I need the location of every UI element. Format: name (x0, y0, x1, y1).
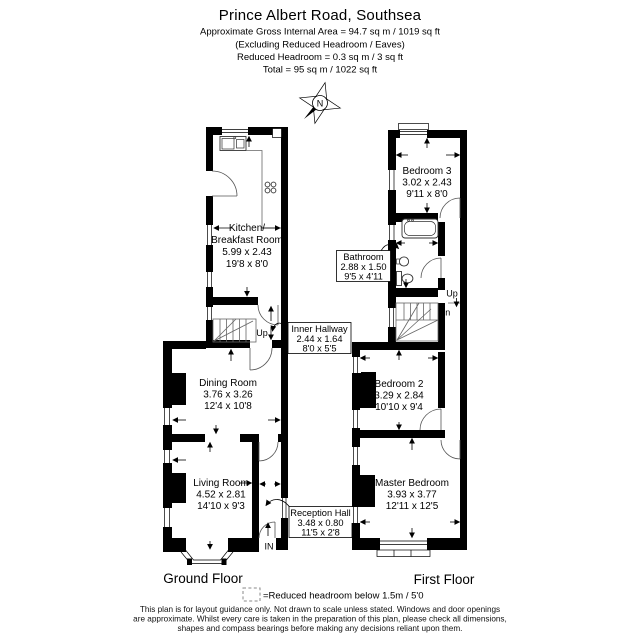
floorplan-canvas: Prince Albert Road, Southsea Approximate… (0, 0, 640, 640)
compass-north-label: N (317, 98, 324, 108)
kitchen-name-2: Breakfast Room (211, 235, 283, 246)
master-bedroom-label: Master Bedroom 3.93 x 3.77 12'11 x 12'5 (375, 478, 449, 512)
bathroom-metric: 2.88 x 1.50 (340, 262, 386, 272)
bedroom2-label: Bedroom 2 3.29 x 2.84 10'10 x 9'4 (374, 379, 424, 413)
stairs-treads (214, 319, 253, 342)
dining-imperial: 12'4 x 10'8 (204, 401, 252, 412)
compass-icon: N (295, 78, 346, 129)
bedroom2-imperial: 10'10 x 9'4 (375, 402, 423, 413)
master-imperial: 12'11 x 12'5 (386, 501, 439, 512)
bathroom-imperial: 9'5 x 4'11 (344, 272, 383, 282)
bathroom-name: Bathroom (343, 252, 384, 262)
page-title: Prince Albert Road, Southsea (219, 7, 422, 24)
reduced-headroom-swatch (243, 588, 260, 601)
inner-hallway-imperial: 8'0 x 5'5 (302, 344, 336, 354)
living-name: Living Room (193, 478, 249, 489)
kitchen-label: Kitchen/ Breakfast Room 5.99 x 2.43 19'8… (211, 223, 283, 270)
master-window-sill (377, 550, 430, 557)
ground-stairs-up-label: Up (256, 328, 268, 338)
legend: =Reduced headroom below 1.5m / 5'0 (243, 588, 424, 602)
reception-hall-metric: 3.48 x 0.80 (297, 518, 343, 528)
first-floor-stairs-icon (396, 303, 460, 341)
kitchen-flue-box (273, 129, 282, 138)
bay-mullion (222, 559, 227, 566)
first-floor-plan: Bedroom 3 3.02 x 2.43 9'11 x 8'0 Bedroom… (337, 124, 475, 588)
master-name: Master Bedroom (375, 478, 449, 489)
stairs-treads (396, 303, 438, 340)
inner-hallway-name: Inner Hallway (291, 324, 348, 334)
disclaimer-line-3: shapes and compass bearings before makin… (178, 624, 463, 633)
reception-hall-callout: Reception Hall 3.48 x 0.80 11'5 x 2'8 (266, 500, 352, 538)
disclaimer-line-2: are approximate. Whilst every care is ta… (133, 615, 507, 624)
reception-hall-imperial: 11'5 x 2'8 (301, 528, 340, 538)
dining-name: Dining Room (199, 378, 257, 389)
kitchen-name-1: Kitchen/ (229, 223, 265, 234)
bedroom3-name: Bedroom 3 (403, 166, 452, 177)
gross-area-line: Approximate Gross Internal Area = 94.7 s… (200, 27, 440, 38)
basin-icon (397, 257, 409, 266)
disclaimer-line-1: This plan is for layout guidance only. N… (140, 605, 500, 614)
bedroom3-window-sill (399, 124, 429, 130)
first-stairs-down-label: Dn (439, 308, 451, 318)
bedroom3-metric: 3.02 x 2.43 (402, 178, 452, 189)
ground-floor-plan: Kitchen/ Breakfast Room 5.99 x 2.43 19'8… (162, 126, 352, 586)
dining-metric: 3.76 x 3.26 (203, 390, 253, 401)
excluding-line: (Excluding Reduced Headroom / Eaves) (235, 40, 405, 51)
total-area-line: Total = 95 sq m / 1022 sq ft (263, 65, 378, 76)
toilet-icon (397, 272, 413, 286)
first-floor-title: First Floor (414, 572, 475, 587)
kitchen-metric: 5.99 x 2.43 (222, 247, 272, 258)
master-metric: 3.93 x 3.77 (387, 490, 437, 501)
bay-window (181, 550, 233, 565)
header: Prince Albert Road, Southsea Approximate… (200, 7, 440, 76)
sill-outline (377, 550, 430, 557)
hob-icon (265, 182, 276, 193)
disclaimer: This plan is for layout guidance only. N… (133, 605, 507, 633)
bathtub-icon (402, 219, 438, 238)
dining-room-label: Dining Room 3.76 x 3.26 12'4 x 10'8 (199, 378, 257, 412)
kitchen-imperial: 19'8 x 8'0 (226, 259, 269, 270)
ground-floor-stairs-icon (213, 319, 256, 342)
living-room-label: Living Room 4.52 x 2.81 14'10 x 9'3 (193, 478, 249, 512)
bedroom2-metric: 3.29 x 2.84 (374, 391, 424, 402)
entrance-in-label: IN (265, 542, 274, 552)
bedroom3-label: Bedroom 3 3.02 x 2.43 9'11 x 8'0 (402, 166, 452, 200)
bedroom2-name: Bedroom 2 (375, 379, 424, 390)
reduced-headroom-legend: =Reduced headroom below 1.5m / 5'0 (263, 591, 424, 602)
reception-hall-name: Reception Hall (290, 508, 350, 518)
ground-floor-window-gaps (162, 126, 289, 527)
bedroom3-imperial: 9'11 x 8'0 (406, 189, 448, 200)
bay-mullion (187, 559, 192, 566)
first-stairs-up-label: Up (446, 289, 458, 299)
living-metric: 4.52 x 2.81 (196, 490, 246, 501)
inner-hallway-metric: 2.44 x 1.64 (296, 334, 342, 344)
ground-floor-title: Ground Floor (163, 571, 243, 586)
living-imperial: 14'10 x 9'3 (197, 501, 245, 512)
sink-icon (220, 137, 246, 151)
reduced-headroom-line: Reduced Headroom = 0.3 sq m / 3 sq ft (237, 52, 403, 63)
